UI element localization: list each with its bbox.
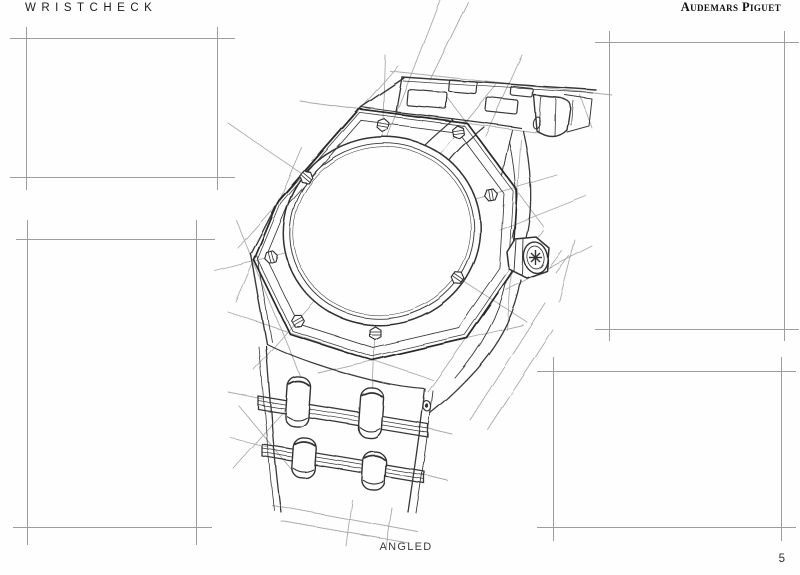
screw-icon	[370, 327, 381, 340]
strap-right-edge	[408, 389, 425, 512]
frame-middle-left	[13, 220, 215, 545]
view-caption: ANGLED	[356, 541, 456, 553]
screw-icon	[263, 250, 278, 264]
watch-sketch	[215, 0, 612, 548]
screw-icon	[376, 118, 389, 133]
page-number: 5	[779, 553, 785, 565]
screw-icon	[484, 188, 499, 201]
dial	[263, 116, 501, 346]
frame-bottom-right	[537, 357, 796, 541]
strap-center-links	[285, 376, 387, 490]
frame-top-left	[10, 27, 235, 190]
crown	[507, 237, 550, 278]
strap-bar-link-1	[258, 396, 428, 437]
bracelet-end-link	[532, 95, 570, 137]
sketch-page-canvas	[0, 0, 800, 575]
frame-top-right	[595, 31, 799, 341]
